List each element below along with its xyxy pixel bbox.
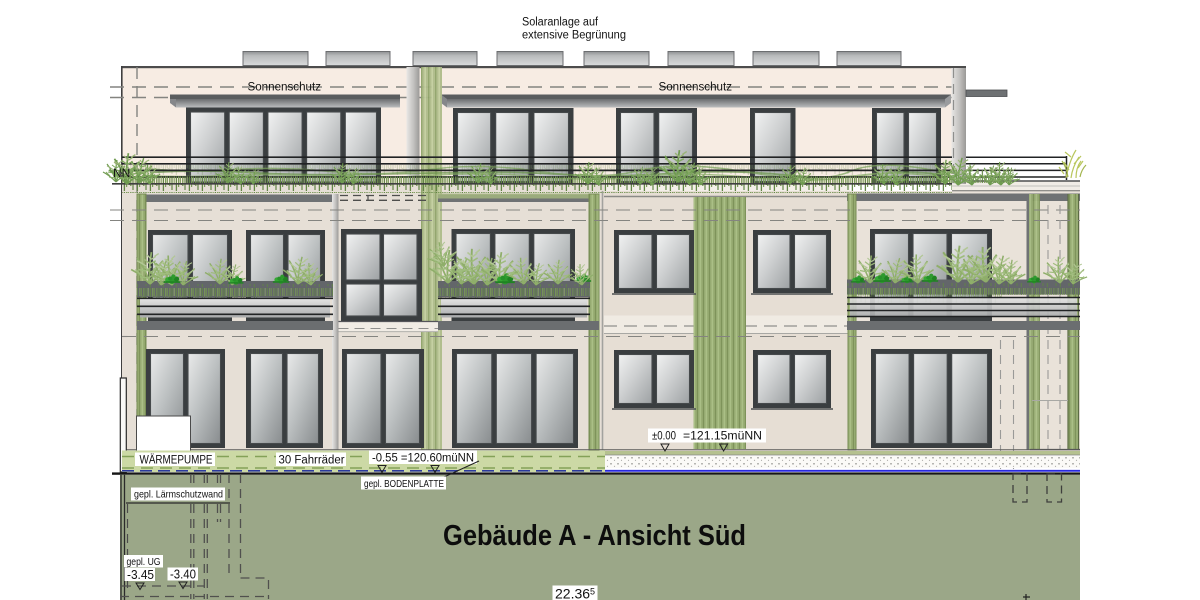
svg-text:22.365: 22.365	[555, 586, 595, 600]
svg-text:Sonnenschutz: Sonnenschutz	[659, 79, 733, 93]
svg-text:-3.45: -3.45	[127, 568, 154, 582]
svg-text:extensive Begrünung: extensive Begrünung	[522, 30, 626, 42]
svg-text:-3.40: -3.40	[170, 568, 196, 582]
svg-text:Sonnenschutz: Sonnenschutz	[248, 79, 322, 93]
svg-text:±0.00: ±0.00	[652, 431, 676, 443]
svg-text:gepl. UG: gepl. UG	[127, 556, 161, 568]
svg-text:NN: NN	[113, 166, 130, 180]
svg-text:WÄRMEPUMPE: WÄRMEPUMPE	[140, 455, 213, 467]
svg-text:-0.55 =120.60müNN: -0.55 =120.60müNN	[372, 453, 474, 465]
svg-text:Solaranlage auf: Solaranlage auf	[522, 17, 599, 29]
svg-text:gepl. Lärmschutzwand: gepl. Lärmschutzwand	[134, 489, 223, 501]
svg-text:30 Fahrräder: 30 Fahrräder	[279, 455, 345, 467]
svg-text:gepl. BODENPLATTE: gepl. BODENPLATTE	[364, 478, 444, 490]
svg-text:Gebäude A - Ansicht Süd: Gebäude A - Ansicht Süd	[443, 520, 746, 552]
svg-text:=121.15müNN: =121.15müNN	[683, 431, 762, 443]
